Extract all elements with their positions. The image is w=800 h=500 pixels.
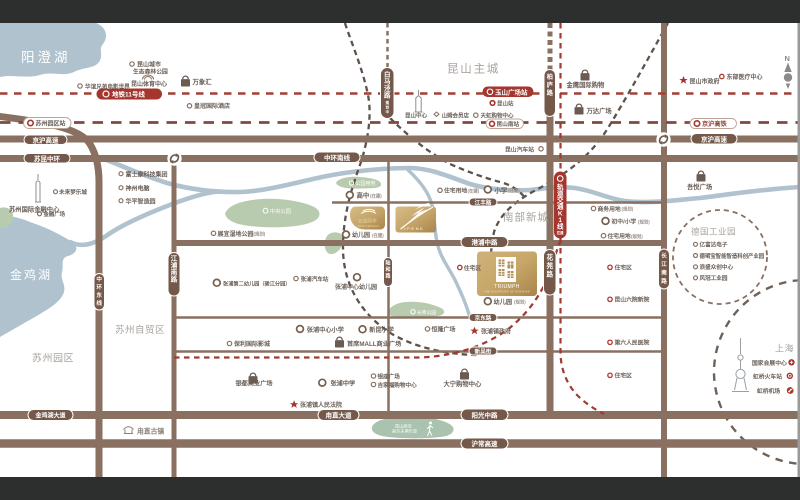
svg-text:高中: 高中 <box>357 191 370 200</box>
svg-text:德珺宝智能智造科创产业园: 德珺宝智能智造科创产业园 <box>700 252 765 260</box>
svg-text:山姆会员店: 山姆会员店 <box>442 112 470 120</box>
svg-text:京沪高速: 京沪高速 <box>701 134 728 143</box>
svg-text:恒隆广场: 恒隆广场 <box>432 325 456 333</box>
svg-text:住宅用地: 住宅用地 <box>444 187 467 195</box>
svg-text:万达广场: 万达广场 <box>586 106 613 115</box>
svg-text:公园用地: 公园用地 <box>356 180 376 187</box>
svg-text:N: N <box>785 54 790 63</box>
svg-text:幼儿园: 幼儿园 <box>352 231 370 239</box>
svg-text:(规划): (规划) <box>622 206 634 213</box>
svg-text:张浦汽车站: 张浦汽车站 <box>301 275 329 283</box>
svg-text:虹桥火车站: 虹桥火车站 <box>753 372 782 380</box>
svg-text:万象汇: 万象汇 <box>192 77 213 86</box>
svg-text:昆山市政府: 昆山市政府 <box>690 77 720 85</box>
svg-text:京沪高铁: 京沪高铁 <box>702 120 728 128</box>
svg-text:昆山体育中心: 昆山体育中心 <box>131 80 167 88</box>
svg-text:展宜湿地公园: 展宜湿地公园 <box>218 230 254 238</box>
svg-text:YUNHU FENGHUA: YUNHU FENGHUA <box>356 224 379 228</box>
svg-text:(规划): (规划) <box>254 231 266 238</box>
svg-text:国家会展中心: 国家会展中心 <box>752 359 787 367</box>
svg-text:(在建): (在建) <box>370 192 382 199</box>
svg-text:吾悦广场: 吾悦广场 <box>687 182 713 191</box>
svg-text:首席MALL商业广场: 首席MALL商业广场 <box>347 340 401 348</box>
svg-text:华平智造园: 华平智造园 <box>126 197 156 205</box>
svg-text:住宅区: 住宅区 <box>615 372 633 380</box>
svg-text:张浦镇人民法院: 张浦镇人民法院 <box>300 401 342 409</box>
svg-text:金鹰国际购物: 金鹰国际购物 <box>566 80 605 89</box>
svg-text:港浦中路: 港浦中路 <box>472 238 499 247</box>
svg-text:住宅区: 住宅区 <box>464 264 482 272</box>
svg-text:苏州自贸区: 苏州自贸区 <box>115 324 165 336</box>
svg-text:东部医疗中心: 东部医疗中心 <box>727 73 763 81</box>
svg-text:张浦第二幼儿园（骏江分园）: 张浦第二幼儿园（骏江分园） <box>223 279 290 287</box>
svg-text:新吴街: 新吴街 <box>475 348 492 356</box>
svg-text:新昆小学: 新昆小学 <box>369 326 394 334</box>
svg-text:地铁11号线: 地铁11号线 <box>112 90 145 99</box>
svg-text:京沪高速: 京沪高速 <box>33 135 60 144</box>
svg-text:云湖风华: 云湖风华 <box>358 218 377 225</box>
svg-text:银都商业广场: 银都商业广场 <box>236 379 273 387</box>
svg-text:第六人民医院: 第六人民医院 <box>615 339 650 347</box>
svg-text:商务用地: 商务用地 <box>598 205 621 213</box>
svg-text:(在建): (在建) <box>372 232 384 239</box>
svg-text:张浦中学: 张浦中学 <box>331 380 356 388</box>
svg-text:(规划): (规划) <box>638 218 650 225</box>
svg-text:幼儿园: 幼儿园 <box>494 298 513 306</box>
svg-text:THE SIGNATURE OF KUNSHAN: THE SIGNATURE OF KUNSHAN <box>484 290 530 294</box>
svg-text:江丰路: 江丰路 <box>475 199 492 207</box>
svg-text:上海: 上海 <box>775 343 794 354</box>
svg-text:保利国际影城: 保利国际影城 <box>233 340 270 348</box>
svg-text:亿富达电子: 亿富达电子 <box>700 241 728 249</box>
svg-text:吉家福购物中心: 吉家福购物中心 <box>378 381 418 389</box>
svg-text:轨道交通K1线在建: 轨道交通K1线在建 <box>557 182 564 235</box>
svg-text:昆山城市: 昆山城市 <box>137 60 161 68</box>
svg-text:(规划): (规划) <box>631 233 643 240</box>
svg-text:江浦南路: 江浦南路 <box>171 254 178 284</box>
svg-text:甪直古镇: 甪直古镇 <box>137 426 164 435</box>
svg-text:昆山主城: 昆山主城 <box>447 63 500 76</box>
svg-text:阳澄湖: 阳澄湖 <box>21 50 71 65</box>
svg-text:中央公园: 中央公园 <box>270 207 291 215</box>
svg-text:生态森林公园: 生态森林公园 <box>133 67 168 75</box>
svg-text:长青公园: 长青公园 <box>417 309 436 316</box>
svg-text:苏州园区站: 苏州园区站 <box>36 119 66 127</box>
svg-text:南部新城: 南部新城 <box>503 211 549 224</box>
svg-text:神州电脑: 神州电脑 <box>126 184 150 192</box>
svg-text:华谊兄弟电影世界: 华谊兄弟电影世界 <box>85 82 130 90</box>
svg-text:小学: 小学 <box>495 185 508 194</box>
svg-text:(规划): (规划) <box>514 299 526 306</box>
svg-text:阳光中路: 阳光中路 <box>472 410 499 419</box>
svg-text:昆山六院新院: 昆山六院新院 <box>615 296 650 304</box>
svg-text:陆和路: 陆和路 <box>384 260 391 280</box>
svg-text:柏庐路: 柏庐路 <box>547 73 554 97</box>
svg-text:JPENK: JPENK <box>404 226 425 231</box>
svg-text:金鸡湖: 金鸡湖 <box>10 267 52 282</box>
svg-text:浪盛众创中心: 浪盛众创中心 <box>700 263 734 271</box>
svg-text:苏昆中环: 苏昆中环 <box>34 154 61 163</box>
svg-text:(在建): (在建) <box>508 187 520 194</box>
svg-text:昆山中心: 昆山中心 <box>405 112 428 120</box>
svg-text:住宅用地: 住宅用地 <box>608 232 631 240</box>
svg-text:昆山站: 昆山站 <box>497 99 514 107</box>
svg-text:住宅区: 住宅区 <box>615 264 633 272</box>
svg-text:京东路: 京东路 <box>475 314 492 322</box>
svg-text:沪常高速: 沪常高速 <box>472 439 499 448</box>
svg-text:昆山南站: 昆山南站 <box>497 120 520 128</box>
svg-text:张浦中心小学: 张浦中心小学 <box>307 326 344 334</box>
svg-text:苏州园区: 苏州园区 <box>32 352 74 365</box>
svg-text:TRIUMPH: TRIUMPH <box>494 284 520 290</box>
svg-text:虹桥机场: 虹桥机场 <box>757 387 780 395</box>
svg-text:(在建): (在建) <box>468 187 480 194</box>
svg-text:风冠工业园: 风冠工业园 <box>700 274 728 282</box>
svg-text:金融广场: 金融广场 <box>43 210 66 218</box>
svg-text:未来梦乐城: 未来梦乐城 <box>59 188 87 196</box>
svg-text:张浦中心幼儿园: 张浦中心幼儿园 <box>335 283 377 291</box>
svg-text:大宁购物中心: 大宁购物中心 <box>444 379 482 388</box>
svg-text:昆山汽车站: 昆山汽车站 <box>505 145 534 153</box>
svg-text:金鸡湖大道: 金鸡湖大道 <box>34 412 65 420</box>
svg-text:德国工业园: 德国工业园 <box>691 227 736 237</box>
svg-text:甪直大道: 甪直大道 <box>326 411 353 420</box>
svg-text:张浦镇政府: 张浦镇政府 <box>481 328 511 336</box>
svg-text:花苑路: 花苑路 <box>546 253 554 279</box>
svg-text:银座广场: 银座广场 <box>378 372 401 380</box>
svg-text:中环南线: 中环南线 <box>324 153 351 162</box>
svg-text:高尔夫俱乐部: 高尔夫俱乐部 <box>392 428 417 435</box>
svg-text:富士康科技集团: 富士康科技集团 <box>126 170 168 178</box>
svg-text:初中/小学: 初中/小学 <box>612 218 637 226</box>
svg-text:皇冠国际酒店: 皇冠国际酒店 <box>194 102 230 110</box>
svg-text:玉山广场站: 玉山广场站 <box>495 87 528 96</box>
svg-text:天虹购物中心: 天虹购物中心 <box>481 112 515 120</box>
